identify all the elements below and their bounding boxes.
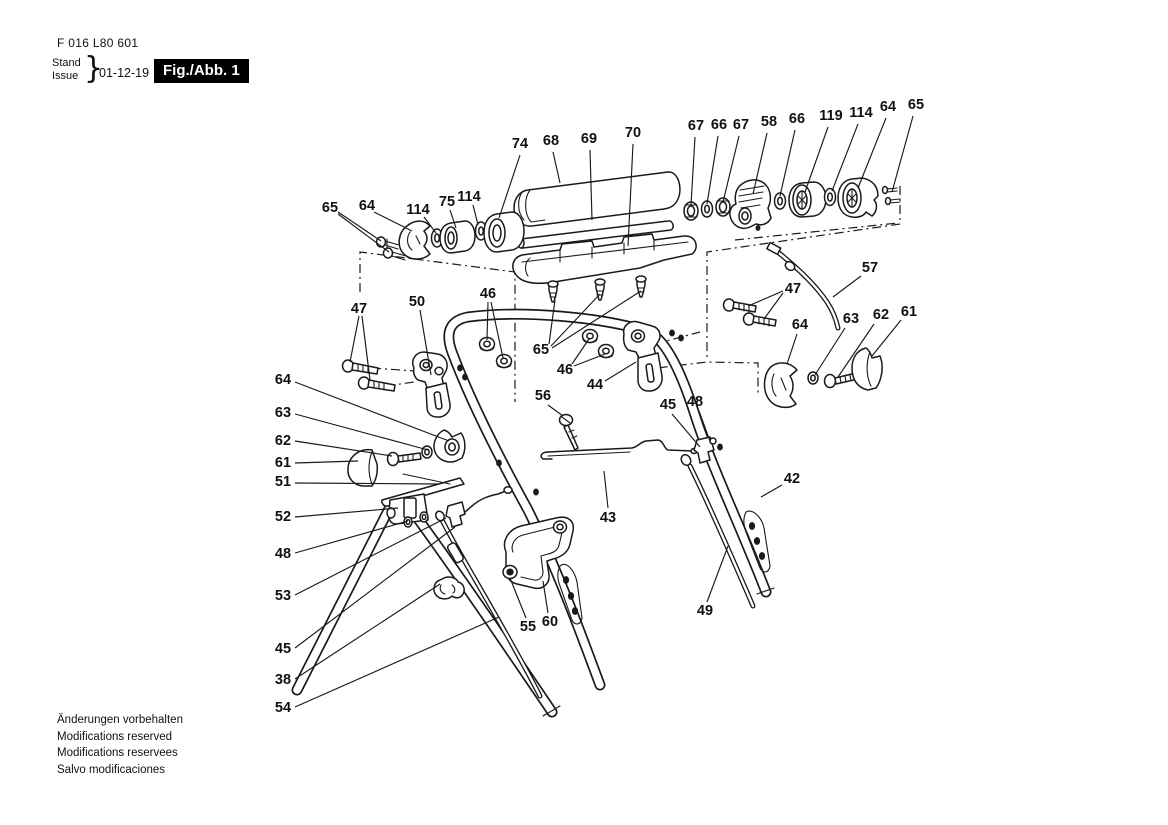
footer-notes: Änderungen vorbehalten Modifications res… [57, 712, 183, 778]
leader-line-47 [764, 293, 783, 319]
leader-line-65 [892, 116, 913, 192]
screw-65-v1 [548, 281, 558, 302]
right-knob-group [684, 178, 900, 230]
leader-line-63 [815, 328, 845, 375]
part-label-51: 51 [275, 474, 291, 490]
part-label-45: 45 [660, 397, 676, 413]
leader-line-64 [787, 334, 797, 364]
nut-46c [583, 330, 598, 343]
left-knob-group [377, 212, 525, 260]
footer-note-de: Änderungen vorbehalten [57, 712, 183, 729]
part-label-42: 42 [784, 471, 800, 487]
leader-line-44 [605, 362, 636, 381]
cover-cap-61-right [852, 348, 882, 390]
part-label-61: 61 [901, 304, 917, 320]
bowden-cable-57 [767, 243, 838, 328]
part-label-58: 58 [761, 114, 777, 130]
part-label-114: 114 [849, 105, 872, 121]
part-label-65: 65 [908, 97, 924, 113]
leader-line-51 [295, 483, 438, 484]
part-label-114: 114 [457, 189, 480, 205]
part-label-67: 67 [688, 118, 704, 134]
part-label-38: 38 [275, 672, 291, 688]
leader-line-56 [548, 405, 563, 416]
leader-line-66 [780, 130, 795, 196]
part-label-55: 55 [520, 619, 536, 635]
leader-line-65 [549, 300, 555, 344]
leader-line-53 [295, 518, 446, 595]
cover-cap-61-left [348, 450, 377, 486]
part-label-62: 62 [275, 433, 291, 449]
leader-line-57 [833, 276, 861, 297]
part-label-64: 64 [359, 198, 375, 214]
part-label-64: 64 [880, 99, 896, 115]
bracket-50 [413, 352, 450, 417]
part-label-67: 67 [733, 117, 749, 133]
footer-note-en: Modifications reserved [57, 729, 183, 746]
part-label-61: 61 [275, 455, 291, 471]
footer-note-fr: Modifications reservees [57, 745, 183, 762]
part-label-74: 74 [512, 136, 528, 152]
leader-line-68 [553, 152, 560, 183]
part-label-52: 52 [275, 509, 291, 525]
screw-65-v2 [595, 279, 605, 300]
part-label-47: 47 [351, 301, 367, 317]
leader-line-47 [350, 316, 359, 362]
leader-line-47 [748, 291, 783, 306]
leader-line-65 [338, 214, 389, 252]
leader-line-64 [858, 118, 886, 188]
clamp-64-right [765, 363, 797, 407]
screw-65-right [883, 187, 901, 205]
washer-63-right [808, 372, 818, 384]
clip-45-left [446, 502, 465, 527]
part-label-43: 43 [600, 510, 616, 526]
part-label-66: 66 [789, 111, 805, 127]
nut-46b [497, 355, 512, 368]
leader-line-114 [473, 205, 478, 225]
part-label-50: 50 [409, 294, 425, 310]
roller-small-b [420, 512, 428, 522]
part-label-49: 49 [697, 603, 713, 619]
knob-64-right [838, 178, 878, 217]
leader-line-46 [572, 339, 589, 364]
lever-latch-assembly [382, 474, 512, 527]
leader-line-46 [487, 302, 488, 340]
cup-washer-64 [434, 430, 465, 462]
part-label-57: 57 [862, 260, 878, 276]
part-label-68: 68 [543, 133, 559, 149]
bolt-62-left [388, 453, 422, 466]
part-label-45: 45 [275, 641, 291, 657]
part-label-119: 119 [819, 108, 842, 124]
screw-56 [560, 415, 579, 451]
part-label-114: 114 [406, 202, 429, 218]
part-label-65: 65 [322, 200, 338, 216]
washer-114-right [825, 189, 836, 206]
part-label-69: 69 [581, 131, 597, 147]
leader-line-67 [691, 137, 695, 205]
wheel-119 [789, 182, 826, 217]
part-label-54: 54 [275, 700, 291, 716]
part-label-65: 65 [533, 342, 549, 358]
footer-note-es: Salvo modificaciones [57, 762, 183, 779]
rod-43 [541, 440, 697, 459]
clamp-housing-58 [730, 180, 771, 231]
hinge-bracket-44 [624, 322, 662, 391]
leader-line-62 [295, 441, 392, 456]
part-label-66: 66 [711, 117, 727, 133]
exploded-parts-diagram: 7468697067666758661191146465656411475114… [0, 0, 1168, 825]
roller-75 [440, 221, 475, 253]
part-label-60: 60 [542, 614, 558, 630]
leader-line-66 [707, 136, 718, 204]
part-label-56: 56 [535, 388, 551, 404]
washer-63-left [422, 446, 432, 458]
part-label-75: 75 [439, 194, 455, 210]
part-label-44: 44 [587, 377, 603, 393]
part-label-46: 46 [557, 362, 573, 378]
part-label-62: 62 [873, 307, 889, 323]
parts-catalog-page: F 016 L80 601 Stand Issue } 01-12-19 Fig… [0, 0, 1168, 825]
part-label-48: 48 [275, 546, 291, 562]
part-label-64: 64 [275, 372, 291, 388]
knob-74 [484, 212, 524, 252]
leader-line-48 [295, 521, 408, 553]
z-wire [465, 491, 506, 512]
leader-line-65 [338, 212, 381, 241]
leader-line-46 [574, 354, 605, 366]
part-label-53: 53 [275, 588, 291, 604]
part-label-63: 63 [843, 311, 859, 327]
part-label-64: 64 [792, 317, 808, 333]
leader-line-49 [707, 546, 728, 602]
bolts-47-left [343, 360, 396, 391]
leader-line-43 [604, 471, 608, 508]
part-label-48: 48 [687, 394, 703, 410]
part-label-63: 63 [275, 405, 291, 421]
grip-tube-68 [514, 172, 680, 226]
part-label-46: 46 [480, 286, 496, 302]
part-label-70: 70 [625, 125, 641, 141]
leader-line-42 [761, 485, 782, 497]
nut-55 [503, 566, 517, 579]
part-label-47: 47 [785, 281, 801, 297]
leader-line-61 [872, 320, 901, 356]
